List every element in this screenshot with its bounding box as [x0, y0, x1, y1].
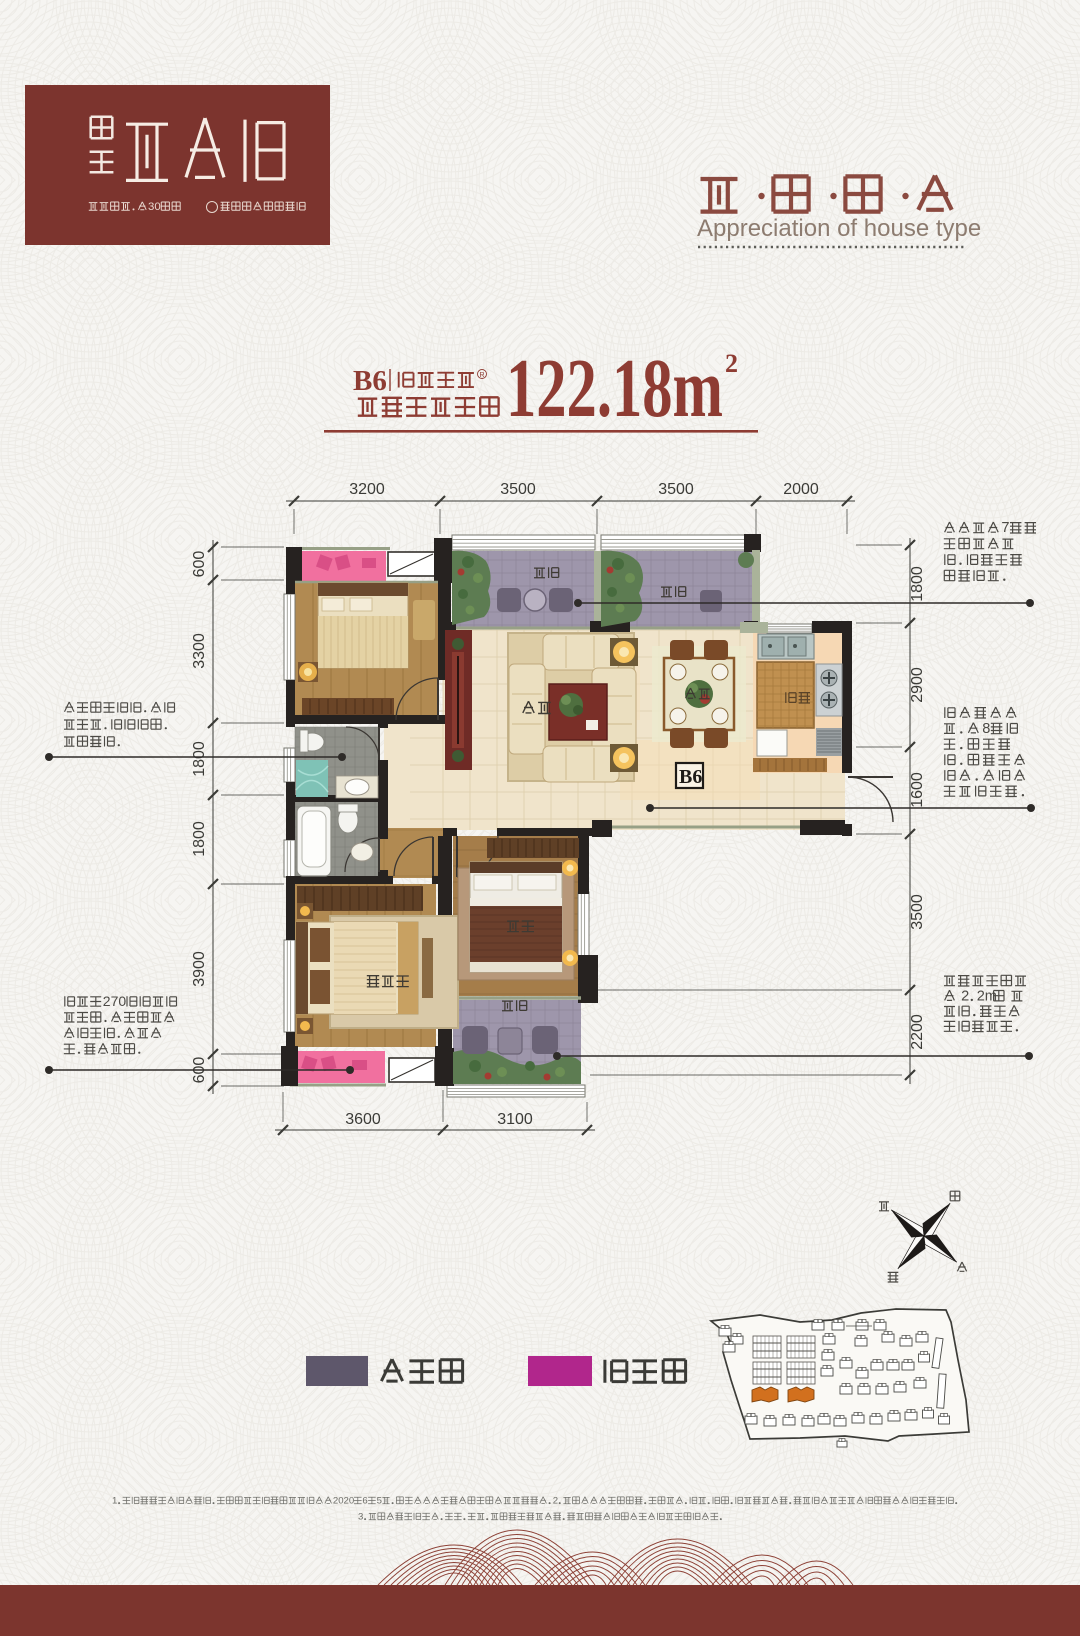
svg-text:3600: 3600: [345, 1111, 381, 1128]
svg-text:3200: 3200: [349, 481, 385, 498]
svg-text:8: 8: [982, 721, 990, 737]
svg-text:3500: 3500: [500, 481, 536, 498]
svg-text:5: 5: [377, 1495, 382, 1506]
svg-text:1800: 1800: [191, 821, 208, 857]
svg-text:1: 1: [112, 1495, 117, 1506]
svg-text:3: 3: [358, 1511, 363, 1522]
svg-text:3500: 3500: [658, 481, 694, 498]
svg-text:270: 270: [103, 993, 127, 1009]
svg-text:B6: B6: [353, 365, 387, 397]
svg-text:1800: 1800: [909, 566, 926, 602]
svg-text:3300: 3300: [191, 633, 208, 669]
svg-text:2: 2: [553, 1495, 558, 1506]
svg-text:2020: 2020: [333, 1495, 354, 1506]
svg-text:600: 600: [191, 551, 208, 578]
svg-text:3100: 3100: [497, 1111, 533, 1128]
svg-text:Appreciation of house type: Appreciation of house type: [697, 215, 981, 242]
svg-text:2900: 2900: [909, 667, 926, 703]
svg-text:2200: 2200: [909, 1014, 926, 1050]
svg-text:B6: B6: [679, 766, 702, 788]
svg-text:2000: 2000: [783, 481, 819, 498]
svg-text:1800: 1800: [191, 741, 208, 777]
svg-text:2: 2: [961, 988, 969, 1004]
svg-text:122.18m: 122.18m: [506, 342, 723, 435]
svg-text:3500: 3500: [909, 894, 926, 930]
svg-text:30: 30: [148, 201, 161, 213]
svg-text:2: 2: [725, 349, 738, 378]
svg-text:3900: 3900: [191, 951, 208, 987]
svg-text:R: R: [480, 372, 485, 379]
svg-text:7: 7: [1001, 520, 1009, 536]
svg-text:6: 6: [362, 1495, 367, 1506]
svg-text:1600: 1600: [909, 772, 926, 808]
